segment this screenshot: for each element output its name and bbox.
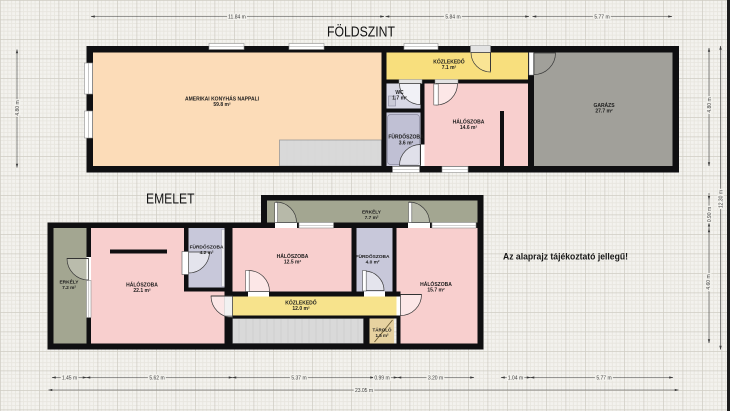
svg-text:5.84 m: 5.84 m: [445, 14, 460, 20]
svg-text:FÜRDŐSZOBA: FÜRDŐSZOBA: [356, 253, 390, 260]
svg-text:12.0 m²: 12.0 m²: [292, 306, 310, 312]
svg-text:EMELET: EMELET: [146, 191, 195, 207]
svg-text:3.6 m²: 3.6 m²: [399, 141, 414, 147]
svg-text:1.04 m: 1.04 m: [508, 375, 523, 381]
svg-text:5.37 m: 5.37 m: [291, 375, 306, 381]
svg-text:TÁROLÓ: TÁROLÓ: [373, 326, 392, 333]
svg-text:12.5 m²: 12.5 m²: [284, 260, 302, 266]
svg-text:14.6 m²: 14.6 m²: [460, 125, 478, 131]
svg-text:23.05 m: 23.05 m: [355, 388, 373, 394]
svg-text:5.77 m: 5.77 m: [594, 14, 609, 20]
svg-text:3.20 m: 3.20 m: [428, 375, 443, 381]
svg-text:1.5 m²: 1.5 m²: [375, 333, 389, 338]
svg-text:FÖLDSZINT: FÖLDSZINT: [327, 23, 395, 41]
svg-text:7.1 m²: 7.1 m²: [442, 65, 457, 71]
svg-text:12.30 m: 12.30 m: [719, 190, 725, 208]
svg-text:0.90 m: 0.90 m: [707, 207, 713, 222]
svg-text:4.60 m: 4.60 m: [706, 274, 712, 289]
svg-text:4.80 m: 4.80 m: [707, 97, 713, 112]
svg-text:5.62 m: 5.62 m: [149, 375, 164, 381]
svg-text:5.77 m: 5.77 m: [596, 375, 611, 381]
svg-text:FÜRDŐSZOBA: FÜRDŐSZOBA: [388, 134, 424, 141]
svg-text:7.7 m²: 7.7 m²: [365, 215, 379, 221]
svg-text:4.2 m²: 4.2 m²: [200, 250, 214, 256]
svg-text:7.2 m²: 7.2 m²: [62, 285, 76, 291]
svg-text:22.1 m²: 22.1 m²: [133, 288, 151, 294]
svg-text:4.0 m²: 4.0 m²: [366, 260, 380, 266]
svg-text:11.84 m: 11.84 m: [228, 14, 246, 20]
svg-text:0.99 m: 0.99 m: [374, 375, 389, 381]
svg-text:27.7 m²: 27.7 m²: [595, 109, 613, 115]
svg-text:Az alaprajz tájékoztató jelleg: Az alaprajz tájékoztató jellegű!: [503, 252, 628, 263]
svg-text:FÜRDŐSZOBA: FÜRDŐSZOBA: [190, 244, 224, 251]
svg-text:1.45 m: 1.45 m: [62, 375, 77, 381]
svg-text:4.80 m: 4.80 m: [15, 100, 21, 115]
svg-text:15.7 m²: 15.7 m²: [427, 287, 445, 293]
svg-text:1.7 m²: 1.7 m²: [392, 96, 407, 102]
svg-text:59.8 m²: 59.8 m²: [213, 102, 231, 108]
